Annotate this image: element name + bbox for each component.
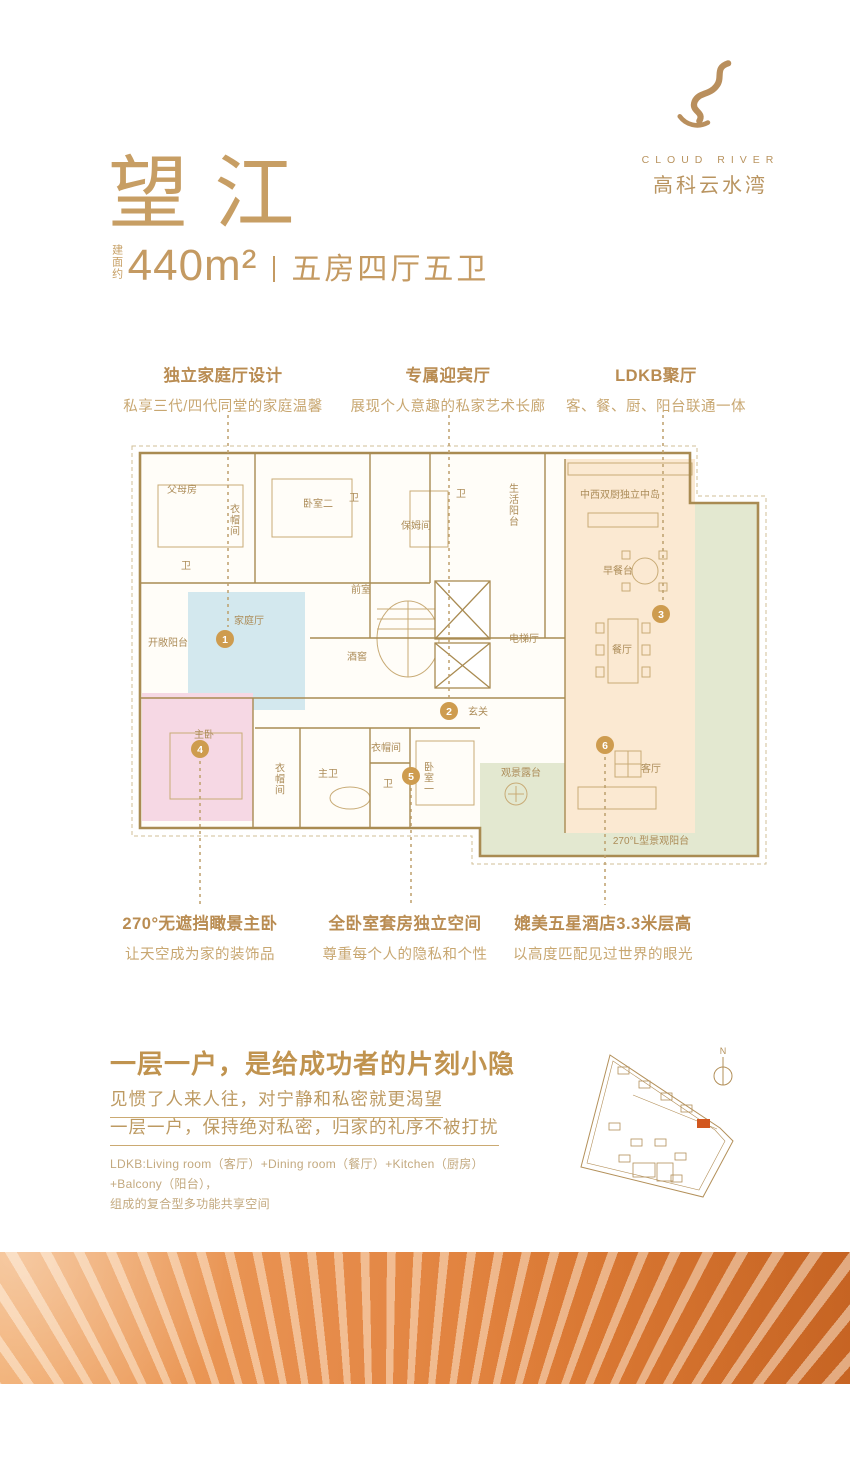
room-label: 观景露台 [501,766,541,779]
unit-spec: 建面约 440m² 五房四厅五卫 [110,244,489,284]
compass-icon: N [714,1046,732,1085]
room-label: 生活阳台 [507,482,519,527]
callout-ceiling-height: 媲美五星酒店3.3米层高 以高度匹配见过世界的眼光 [473,910,733,964]
room-label: 卧室一 [422,760,434,794]
brand-name-cn: 高科云水湾 [618,169,803,198]
room-label: 餐厅 [612,643,632,656]
ldkb-note: LDKB:Living room（客厅）+Dining room（餐厅）+Kit… [110,1155,530,1214]
brand-name-en: CLOUD RIVER [618,154,803,166]
room-label: 主卫 [318,768,338,780]
area-prefix: 建面约 [110,244,123,280]
room-label: 玄关 [468,705,488,718]
svg-text:3: 3 [658,609,664,621]
site-plan: N [575,1035,795,1220]
room-label: 保姆间 [401,519,431,532]
room-label: 衣帽间 [371,741,401,754]
site-current-building [697,1119,710,1128]
room-label: 电梯厅 [509,632,539,645]
room-label: 卫 [383,779,393,790]
unit-marker-6: 6 [596,736,614,754]
room-label: 卫 [456,489,466,500]
area-value: 440m² [128,247,258,284]
unit-marker-1: 1 [216,630,234,648]
room-label: 客厅 [641,762,661,775]
site-buildings [609,1067,692,1182]
svg-text:2: 2 [446,706,452,718]
room-label: 中西双厨独立中岛 [580,488,660,501]
floor-plan: 父母房 衣帽间 卧室二 卫 卫 保姆间 生活阳台 卫 前室 酒窖 家庭厅 开敞阳… [110,413,800,910]
callout-ldkb: LDKB聚厅 客、餐、厨、阳台联通一体 [526,362,786,416]
unit-marker-3: 3 [652,605,670,623]
callout-title: 媲美五星酒店3.3米层高 [473,910,733,934]
svg-text:6: 6 [602,740,608,752]
unit-marker-5: 5 [402,767,420,785]
room-label: 前室 [351,583,371,596]
river-s-icon [672,50,750,150]
spec-divider [273,256,275,282]
ldkb-note-line: LDKB:Living room（客厅）+Dining room（餐厅）+Kit… [110,1155,530,1195]
svg-text:4: 4 [197,744,203,756]
room-label: 衣帽间 [228,502,240,536]
tagline-heading: 一层一户，是给成功者的片刻小隐 [110,1044,515,1081]
poster-page: CLOUD RIVER 高科云水湾 望 江 建面约 440m² 五房四厅五卫 独… [0,0,850,1461]
room-label: 父母房 [167,483,197,496]
room-label: 酒窖 [347,650,367,663]
room-label: 卧室二 [303,497,333,510]
room-label: 卫 [181,561,191,572]
brand-logo: CLOUD RIVER 高科云水湾 [618,50,803,198]
room-label: 家庭厅 [234,614,264,627]
room-label: 衣帽间 [273,761,285,795]
room-label: 卫 [349,493,359,504]
zone-family-hall [188,592,305,710]
callout-title: 独立家庭厅设计 [93,362,353,386]
ldkb-note-line: 组成的复合型多功能共享空间 [110,1195,530,1215]
unit-marker-2: 2 [440,702,458,720]
svg-text:5: 5 [408,771,414,783]
svg-text:1: 1 [222,634,228,646]
room-label: 早餐台 [603,564,633,577]
tagline-line: 一层一户，保持绝对私密，归家的礼序不被打扰 [110,1114,499,1146]
unit-marker-4: 4 [191,740,209,758]
room-label: 270°L型景观阳台 [613,834,689,847]
elevator-shafts [435,581,490,688]
unit-title: 望 江 [108,150,296,238]
room-label: 主卧 [194,728,214,741]
north-label: N [720,1046,727,1056]
unit-layout: 五房四厅五卫 [291,256,489,285]
callout-title: LDKB聚厅 [526,362,786,386]
callout-family-hall: 独立家庭厅设计 私享三代/四代同堂的家庭温馨 [93,362,353,416]
room-label: 开敞阳台 [148,636,188,649]
callout-desc: 以高度匹配见过世界的眼光 [473,943,733,964]
disclaimer-banner: 免责声明：本宣传资料仅供参考，不构成要约邀请或要约，不意味着本公司对此作出了承诺… [0,1252,850,1384]
